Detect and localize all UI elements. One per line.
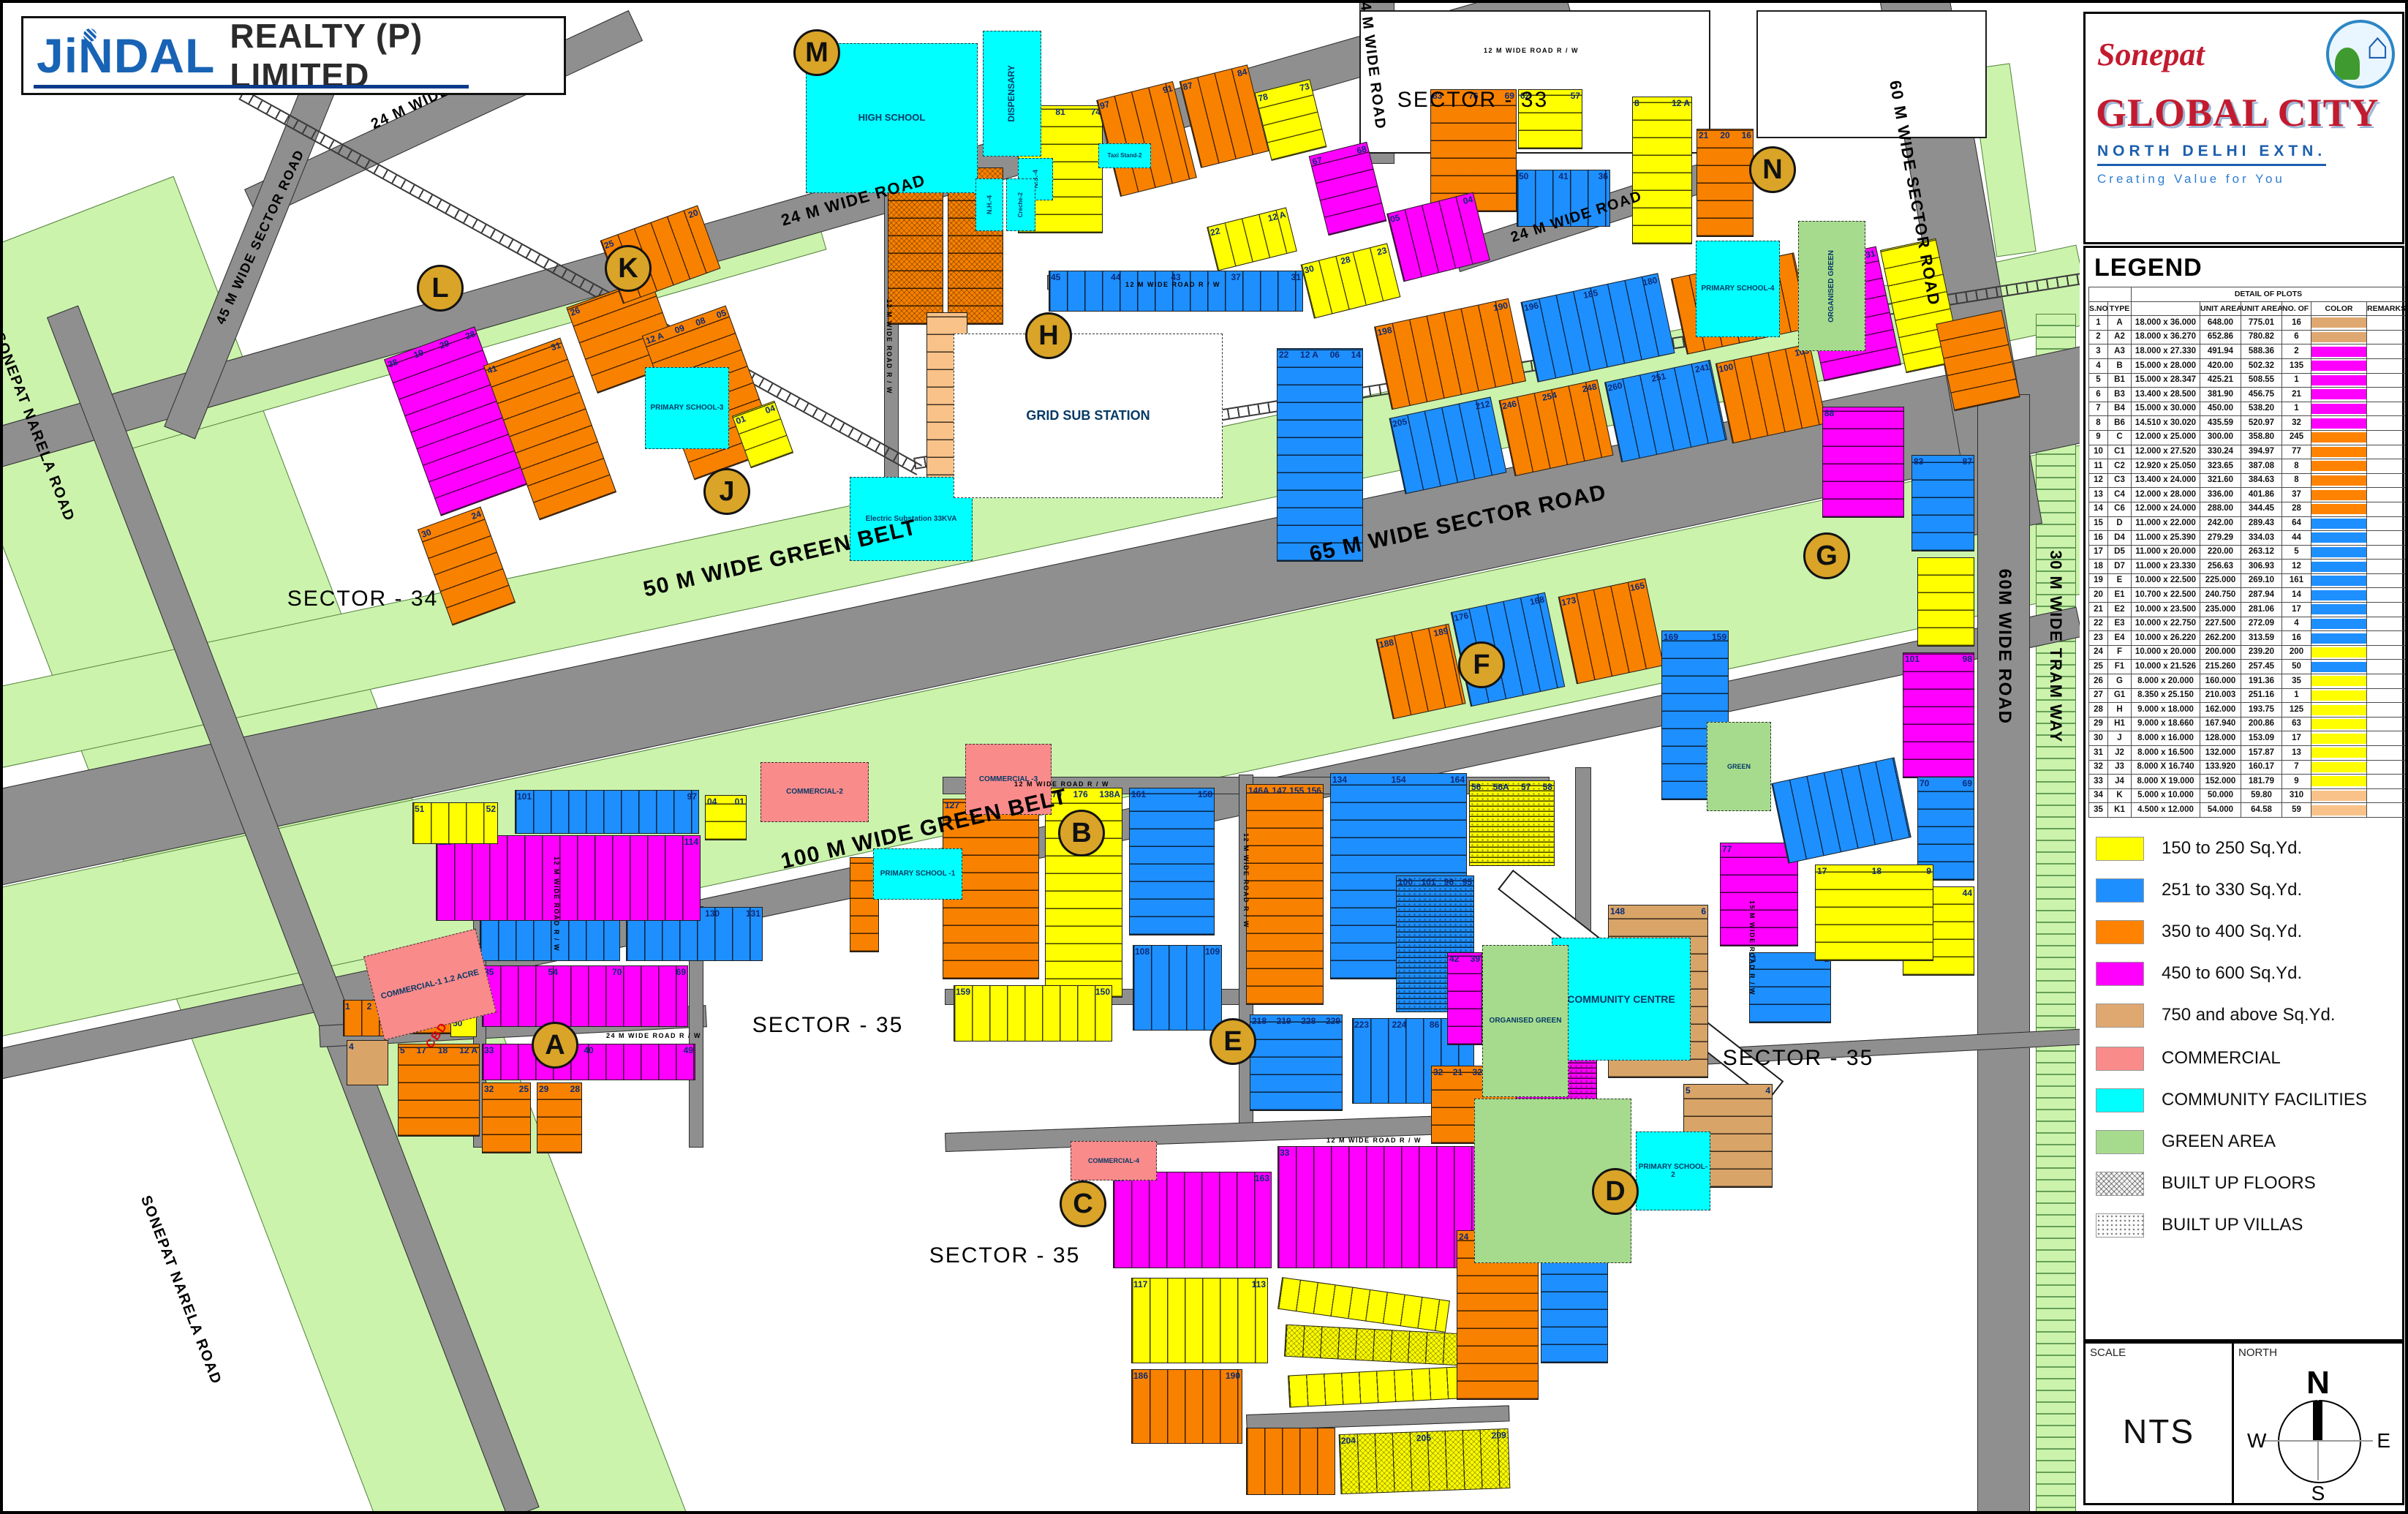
landmark-label: COMMUNITY CENTRE [1567,993,1675,1005]
legend-label: 150 to 250 Sq.Yd. [2162,838,2302,859]
plot-number: 1 [345,1002,350,1011]
dispensary: DISPENSARY [983,31,1041,157]
plot-cluster [1277,1277,1450,1333]
plot-cluster [1771,757,1911,863]
plot-cluster: 5656A5758 [1469,780,1555,866]
sector-label: SECTOR - 35 [752,1013,904,1038]
plot-number: 131 [746,909,760,918]
plot-number: 16 [1742,131,1751,140]
plot-number: 23 [1376,246,1388,257]
plot-type-row: 18D711.000 x 23.330256.63306.9312 [2089,560,2406,574]
plot-number: 9 [1926,867,1931,875]
plot-number: 176 [1073,790,1088,799]
plot-number: 37 [1231,273,1240,282]
plot-cluster: 3225 [482,1082,531,1153]
road-label: 15 M WIDE ROAD R / W [1748,900,1756,995]
color-swatch-cell [2311,531,2367,546]
plot-number: 101 [1421,878,1435,886]
map-area: 3819292841313024262012 A0908050104252010… [3,3,2405,1511]
plot-cluster: 334049 [482,1044,695,1080]
plot-type-row: 33J48.000 X 19.000152.000181.799 [2089,775,2406,789]
title-block: JiNDAL REALTY (P) LIMITED [21,16,566,95]
plot-number: 69 [1963,779,1972,788]
plot-cluster: 186190 [1131,1369,1242,1444]
plot-cluster: 184163 [1113,1172,1272,1268]
plot-number: 05 [715,308,728,320]
plot-number: 31 [550,340,562,352]
compass-n: N [2306,1365,2330,1401]
plot-number: 196 [1523,301,1539,312]
legend-item: BUILT UP FLOORS [2096,1172,2399,1196]
color-swatch-cell [2311,746,2367,761]
road-label: 12 M WIDE ROAD R / W [1242,833,1250,928]
plot-number: 28 [1340,255,1351,265]
plot-number: 138A [1099,790,1120,799]
organised-green: ORGANISED GREEN [1798,221,1865,351]
color-swatch-cell [2311,473,2367,488]
plot-number: 98 [1963,655,1972,663]
plot-type-row: 2A218.000 x 36.270652.86780.826 [2089,330,2406,344]
plot-number: 83 [1914,457,1923,466]
color-swatch-cell [2311,388,2367,402]
plot-number: 12 A [1672,99,1690,108]
legend-item: COMMUNITY FACILITIES [2096,1088,2399,1112]
legend-swatch [2096,1130,2144,1154]
plot-type-row: 13C412.000 x 28.000336.00401.8637 [2089,488,2406,502]
legend-label: 350 to 400 Sq.Yd. [2162,922,2302,942]
parcel [1756,10,1987,138]
community-centre: COMMUNITY CENTRE [1552,938,1691,1061]
plot-number: 54 [548,968,558,976]
plot-type-row: 35K14.500 x 12.00054.00064.5859 [2089,803,2406,818]
plot-number: 91 [1162,84,1174,95]
plot-cluster: 5152 [412,802,498,844]
plot-number: 204 [1341,1436,1356,1445]
road-label: 45 M WIDE SECTOR ROAD [213,147,307,327]
compass-icon: N W E S [2263,1371,2373,1495]
plot-number: 08 [695,316,707,328]
plot-cluster: 77 [1720,843,1798,946]
plot-number: 01 [735,797,744,806]
plot-cluster: 159150 [954,985,1112,1042]
landmark-label: COMMERCIAL-4 [1088,1157,1139,1164]
plot-number: 165 [1629,581,1645,592]
plot-number: 158 [1198,790,1212,799]
legend-label: COMMERCIAL [2162,1048,2281,1069]
column-header: UNIT AREA (SQ.MT) [2200,301,2241,316]
color-swatch-cell [2311,373,2367,388]
legend-item: 350 to 400 Sq.Yd. [2096,920,2399,944]
plot-type-row: 8B614.510 x 30.020435.59520.9732 [2089,416,2406,431]
north-cell: NORTH N W E S [2234,1344,2402,1503]
plot-number: 5 [400,1046,405,1055]
plot-number: 209 [1492,1431,1506,1440]
plot-number: 148 [1610,907,1625,916]
plot-number: 4 [349,1042,354,1051]
plot-cluster: 2928 [537,1082,582,1153]
landmark-label: Taxi Stand-2 [1108,152,1142,159]
color-swatch-cell [2311,703,2367,718]
plot-number: 69 [676,968,686,976]
column-header: REMARKS [2367,301,2406,316]
legend-label: 251 to 330 Sq.Yd. [2162,880,2302,900]
plot-cluster: 4239 [1447,952,1482,1045]
legend-swatch [2096,920,2144,944]
plot-number: 150 [1095,987,1110,996]
color-swatch-cell [2311,358,2367,373]
plot-number: 44 [1963,889,1972,897]
legend-label: BUILT UP VILLAS [2162,1215,2303,1235]
plot-cluster: 88 [1822,407,1904,518]
primary-school-1: PRIMARY SCHOOL -1 [873,848,962,900]
plot-number: 186 [1133,1371,1148,1380]
legend-label: 750 and above Sq.Yd. [2162,1005,2336,1025]
table-title: DETAIL OF PLOTS [2132,287,2406,302]
right-panel: Sonepat ⌂ GLOBAL CITY NORTH DELHI EXTN. … [2080,3,2408,1511]
plot-number: 41 [486,364,499,375]
plot-number: 260 [1607,381,1623,393]
plot-number: 212 [1475,399,1491,411]
scale-cell: SCALE NTS [2086,1344,2234,1503]
sector-label: SECTOR - 35 [1723,1046,1874,1071]
plot-number: 198 [1377,325,1393,337]
color-swatch-cell [2311,459,2367,474]
plot-number: 14 [1351,350,1361,359]
house-icon: ⌂ [2366,27,2389,65]
color-swatch-cell [2311,516,2367,531]
plot-cluster: 146A147155156 [1246,784,1324,1005]
plot-number: 130 [705,909,720,918]
plot-cluster: 218219228229 [1250,1014,1343,1111]
marker-C: C [1060,1180,1106,1227]
color-swatch-cell [2311,330,2367,344]
plot-type-row: 5B115.000 x 28.347425.21508.551 [2089,373,2406,388]
color-swatch-cell [2311,717,2367,731]
plot-number: 117 [1133,1280,1147,1289]
marker-A: A [532,1022,578,1069]
plot-type-row: 30J8.000 x 16.000128.000153.0917 [2089,731,2406,746]
color-swatch-cell [2311,775,2367,789]
plot-number: 24 [1459,1232,1468,1241]
legend-item: 251 to 330 Sq.Yd. [2096,878,2399,903]
plot-number: 248 [1582,382,1598,393]
plot-number: 4 [1765,1086,1770,1095]
color-swatch-cell [2311,573,2367,588]
plot-number: 95 [1462,878,1472,886]
plot-type-row: 3A318.000 x 27.330491.94588.362 [2089,344,2406,359]
plot-type-row: 1A18.000 x 36.000648.00775.0116 [2089,316,2406,331]
grid-sub-station: GRID SUB STATION [954,334,1223,498]
primary-school-3: PRIMARY SCHOOL-3 [645,367,729,449]
plot-cluster: 31 [1749,952,1831,1023]
landmark-label: COMMERCIAL-2 [786,788,843,796]
brand-logo-box: Sonepat ⌂ GLOBAL CITY NORTH DELHI EXTN. … [2083,12,2404,244]
plot-cluster: 302823 [1301,243,1401,318]
plot-cluster: 10197 [515,790,699,834]
legend-box: LEGEND DETAIL OF PLOTSS.NOTYPEUNIT AREA … [2083,246,2404,1341]
jindal-logo: JiNDAL [37,31,215,80]
plot-number: 41 [1558,172,1568,181]
scale-north-box: SCALE NTS NORTH N W E S [2083,1341,2404,1505]
landmark-label: ORGANISED GREEN [1827,250,1836,323]
plot-number: 56A [1493,783,1509,791]
creche-2: Creche-2 [1006,178,1035,231]
plot-number: 04 [707,797,717,806]
sector-label: SECTOR - 34 [287,587,439,611]
plot-number: 22 [1209,226,1221,237]
compass-s: S [2311,1482,2325,1505]
plot-cluster: 0504 [1386,192,1490,282]
plot-number: 241 [1694,362,1710,374]
road-label: 12 M WIDE ROAD R / W [886,299,893,394]
landmark-label: PRIMARY SCHOOL-4 [1701,285,1774,293]
plot-number: 97 [687,792,697,801]
plot-number: 86 [1430,1020,1439,1029]
plot-number: 26 [569,306,581,317]
plot-number: 101 [517,792,532,801]
plot-number: 229 [1326,1017,1340,1025]
legend-swatch [2096,962,2144,986]
legend-label: 450 to 600 Sq.Yd. [2162,963,2302,984]
plot-cluster [1246,1428,1335,1495]
legend-label: COMMUNITY FACILITIES [2162,1090,2367,1110]
plot-cluster: 212016 [1696,129,1754,237]
plot-cluster: 8387 [1911,455,1974,551]
plot-number: 218 [1252,1017,1267,1025]
column-header: COLOR [2311,301,2367,316]
plot-number: 36 [1599,172,1608,181]
road-label: 60M WIDE ROAD [1994,569,2015,725]
color-swatch-cell [2311,588,2367,603]
plot-number: 5 [1686,1086,1691,1095]
scale-caption: SCALE [2090,1347,2126,1359]
plot-type-row: 21E210.000 x 23.500235.000281.0617 [2089,603,2406,617]
plot-number: 246 [1501,399,1517,411]
plot-number: 20 [1720,131,1729,140]
plot-number: 21 [1699,131,1708,140]
street [1246,1405,1510,1431]
legend-heading: LEGEND [2094,254,2399,282]
plot-number: 254 [1541,391,1558,402]
plot-number: 6 [1701,907,1706,916]
plot-cluster: 113114 [436,835,701,921]
marker-M: M [793,29,840,76]
plot-number: 12 A [645,331,665,345]
color-swatch-cell [2311,631,2367,646]
globe-dot-icon [83,29,97,42]
brand-text: JiNDAL [37,29,215,83]
landmark-label: PRIMARY SCHOOL-3 [650,404,723,413]
plot-number: 45 [1051,273,1060,282]
plot-number: 49 [684,1046,693,1055]
legend-swatch [2096,1003,2144,1028]
plot-number: 164 [1450,775,1465,784]
plot-type-row: 10C112.000 x 27.520330.24394.9777 [2089,445,2406,459]
plot-cluster: 4544433731 [1049,271,1303,312]
compass-w: W [2247,1429,2266,1453]
plot-type-row: 15D11.000 x 22.000242.00289.4364 [2089,516,2406,531]
column-header: S.NO [2089,301,2108,316]
plot-number: 29 [539,1085,548,1093]
legend-swatch [2096,837,2144,861]
legend-swatch [2096,1088,2144,1112]
plot-cluster: 204205209 [1339,1428,1511,1494]
plot-cluster: 117113 [1131,1278,1268,1363]
plot-number: 147 [1272,786,1286,795]
plot-number: 25 [519,1085,529,1093]
legend-label: GREEN AREA [2162,1131,2276,1152]
plot-number: 190 [1492,301,1509,312]
plot-number: 12 A [1300,350,1318,359]
plot-number: 156 [1307,786,1321,795]
plot-number: 155 [1289,786,1304,795]
plot-number: 189 [1433,626,1449,638]
plot-type-row: 24F10.000 x 20.000200.000239.20200 [2089,645,2406,660]
plot-cluster [1917,557,1974,647]
plot-number: 84 [1237,67,1248,78]
road-label: 12 M WIDE ROAD R / W [1014,780,1109,788]
plot-number: 159 [956,987,970,996]
marker-D: D [1592,1168,1639,1215]
plot-number: 108 [1135,947,1150,956]
plot-number: 28 [570,1085,580,1093]
plot-number: 40 [584,1046,593,1055]
color-swatch-cell [2311,660,2367,674]
plot-number: 39 [1471,954,1480,963]
plot-number: 06 [1330,350,1340,359]
plot-number: 17 [417,1046,426,1055]
color-swatch-cell [2311,688,2367,703]
marker-F: F [1458,641,1505,688]
plot-type-row: 11C212.920 x 25.050323.65387.088 [2089,459,2406,474]
plot-type-row: 27G18.350 x 25.150210.003251.161 [2089,688,2406,703]
plot-number: 29 [438,339,450,350]
legend-item: COMMERCIAL [2096,1047,2399,1071]
area-category-legend: COMMERCIALCOMMUNITY FACILITIESGREEN AREA… [2088,1047,2399,1238]
color-swatch-cell [2311,445,2367,459]
plot-cluster: 5171812 A [398,1044,480,1137]
landmark-label: Creche-2 [1017,192,1024,217]
color-swatch-cell [2311,645,2367,660]
legend-swatch [2096,1047,2144,1071]
plot-number: 168 [1529,595,1545,606]
color-swatch-cell [2311,674,2367,689]
plot-number: 87 [1963,457,1972,466]
taxi-stand-2: Taxi Stand-2 [1098,143,1151,168]
plot-type-row: 26G8.000 x 20.000160.000191.3635 [2089,674,2406,689]
commercial-4: COMMERCIAL-4 [1071,1141,1157,1180]
plot-cluster: 2212 A [1207,207,1297,271]
plot-number: 101 [1905,655,1920,663]
globe-house-icon: ⌂ [2326,20,2395,88]
plot-number: 20 [687,208,700,219]
color-swatch-cell [2311,560,2367,574]
plot-number: 44 [1111,273,1120,282]
plot-number: 57 [1521,783,1531,791]
marker-L: L [417,265,464,312]
plot-number: 04 [764,404,777,415]
plot-number: 42 [1449,954,1459,963]
plot-number: 31 [1291,273,1301,282]
landmark-label: ORGANISED GREEN [1490,1017,1562,1025]
landmark-label: COMMERCIAL-1 1.2 ACRE [380,968,480,1001]
plot-type-row: 23E410.000 x 26.220262.200313.5916 [2089,631,2406,646]
road-60m [1977,394,2030,1514]
column-header: NO. OF PLOTS [2282,301,2311,316]
plot-type-row: 4B15.000 x 28.000420.00502.32135 [2089,358,2406,373]
size-category-legend: 150 to 250 Sq.Yd.251 to 330 Sq.Yd.350 to… [2088,837,2399,1028]
color-swatch-cell [2311,617,2367,631]
color-swatch-cell [2311,344,2367,359]
primary-school-2: PRIMARY SCHOOL-2 [1636,1131,1710,1210]
road-label: SONEPAT NARELA ROAD [137,1194,224,1387]
plot-number: 21 [1453,1068,1462,1077]
plot-number: 205 [1392,417,1408,429]
plot-type-row: 19E10.000 x 22.500225.000269.10161 [2089,573,2406,588]
color-swatch-cell [2311,545,2367,560]
legend-swatch [2096,878,2144,903]
plot-number: 114 [684,837,698,846]
color-swatch-cell [2311,803,2367,818]
legend-label: BUILT UP FLOORS [2162,1173,2316,1194]
plot-number: 24 [470,509,483,521]
plot-number: 113 [1252,1280,1266,1289]
tree-icon [2335,48,2360,80]
plot-number: 96 [1444,878,1454,886]
plot-number: 30 [1303,264,1315,275]
color-swatch-cell [2311,502,2367,516]
plot-cluster: 85547069 [482,965,688,1027]
plot-number: 31 [1865,249,1876,260]
plot-number: 224 [1392,1020,1406,1029]
plot-number: 100 [1718,362,1734,374]
plot-type-row: 28H9.000 x 18.000162.000193.75125 [2089,703,2406,718]
plot-type-row: 14C612.000 x 24.000288.00344.4528 [2089,502,2406,516]
landmark-label: PRIMARY SCHOOL-2 [1638,1163,1708,1180]
legend-item: GREEN AREA [2096,1130,2399,1154]
plot-number: 223 [1354,1020,1369,1029]
plot-type-row: 12C313.400 x 24.000321.60384.638 [2089,473,2406,488]
plot-type-row: 31J28.000 x 16.500132.000157.8713 [2089,746,2406,761]
scale-value: NTS [2123,1412,2194,1451]
plot-number: 52 [486,805,496,813]
plot-number: 163 [1255,1174,1269,1183]
road-label: 12 M WIDE ROAD R / W [1326,1137,1422,1144]
legend-item: 150 to 250 Sq.Yd. [2096,837,2399,861]
logo-extn: NORTH DELHI EXTN. [2097,143,2326,166]
green-area [2036,314,2076,1514]
plot-number: 67 [1311,156,1323,167]
marker-N: N [1749,146,1796,193]
column-header: UNIT AREA (SQ.YD) [2241,301,2282,316]
plot-number: 185 [1582,288,1599,300]
plot-number: 173 [1560,595,1577,607]
plot-cluster: 108109 [1133,945,1222,1031]
plot-number: 51 [415,805,424,813]
plot-number: 87 [1182,80,1193,91]
plot-number: 176 [1453,611,1469,622]
north-caption: NORTH [2238,1347,2277,1359]
plot-number: 228 [1301,1017,1316,1025]
plot-number: 154 [1391,775,1405,784]
plot-number: 180 [1642,276,1658,287]
column-header [2132,301,2200,316]
plot-number: 205 [1416,1434,1431,1443]
color-swatch-cell [2311,731,2367,746]
plot-number: 12 A [1267,210,1286,223]
organised-green: ORGANISED GREEN [1482,945,1569,1097]
marker-K: K [605,245,652,292]
